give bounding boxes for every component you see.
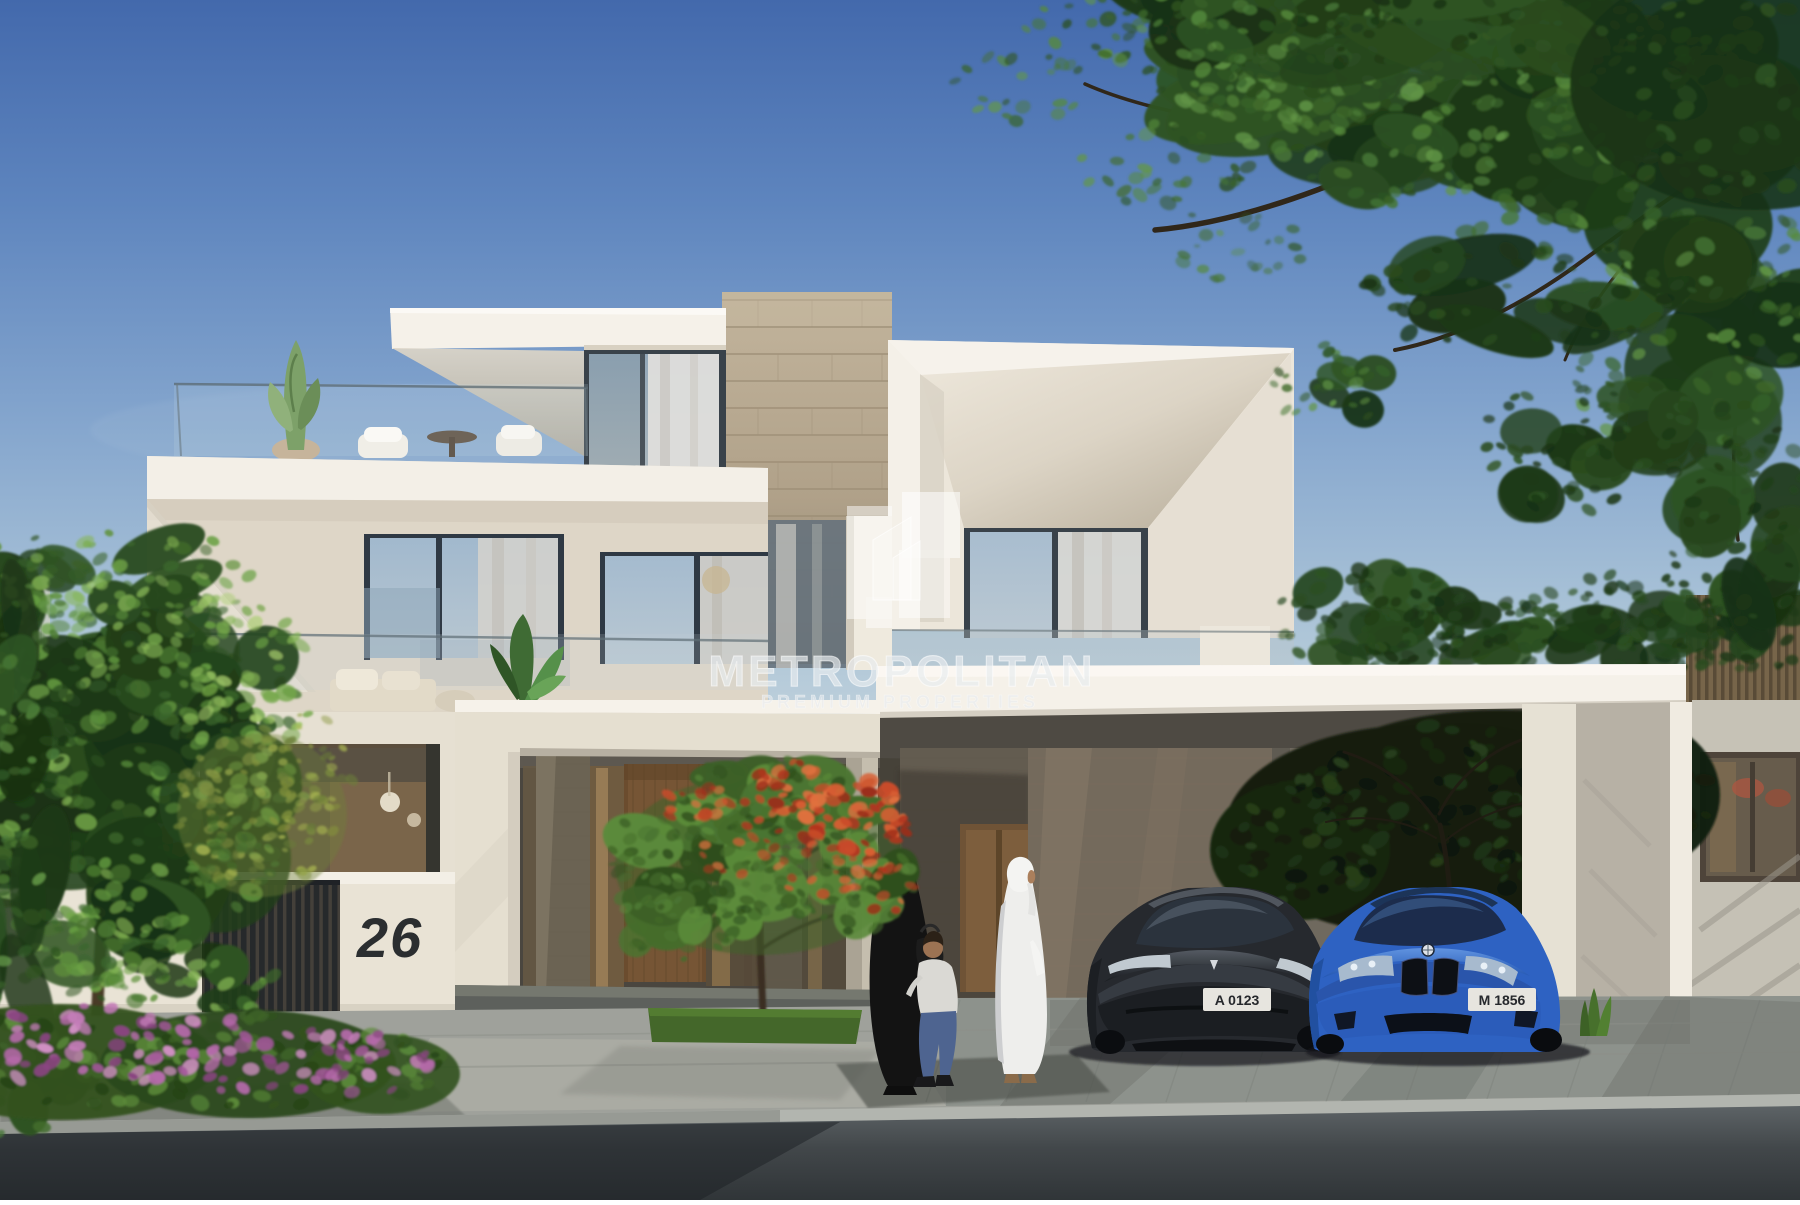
svg-text:PREMIUM PROPERTIES: PREMIUM PROPERTIES xyxy=(761,692,1039,712)
svg-text:A 0123: A 0123 xyxy=(1215,992,1260,1008)
svg-text:METROPOLITAN: METROPOLITAN xyxy=(708,647,1095,696)
svg-text:M 1856: M 1856 xyxy=(1479,992,1526,1008)
svg-text:26: 26 xyxy=(356,906,423,969)
